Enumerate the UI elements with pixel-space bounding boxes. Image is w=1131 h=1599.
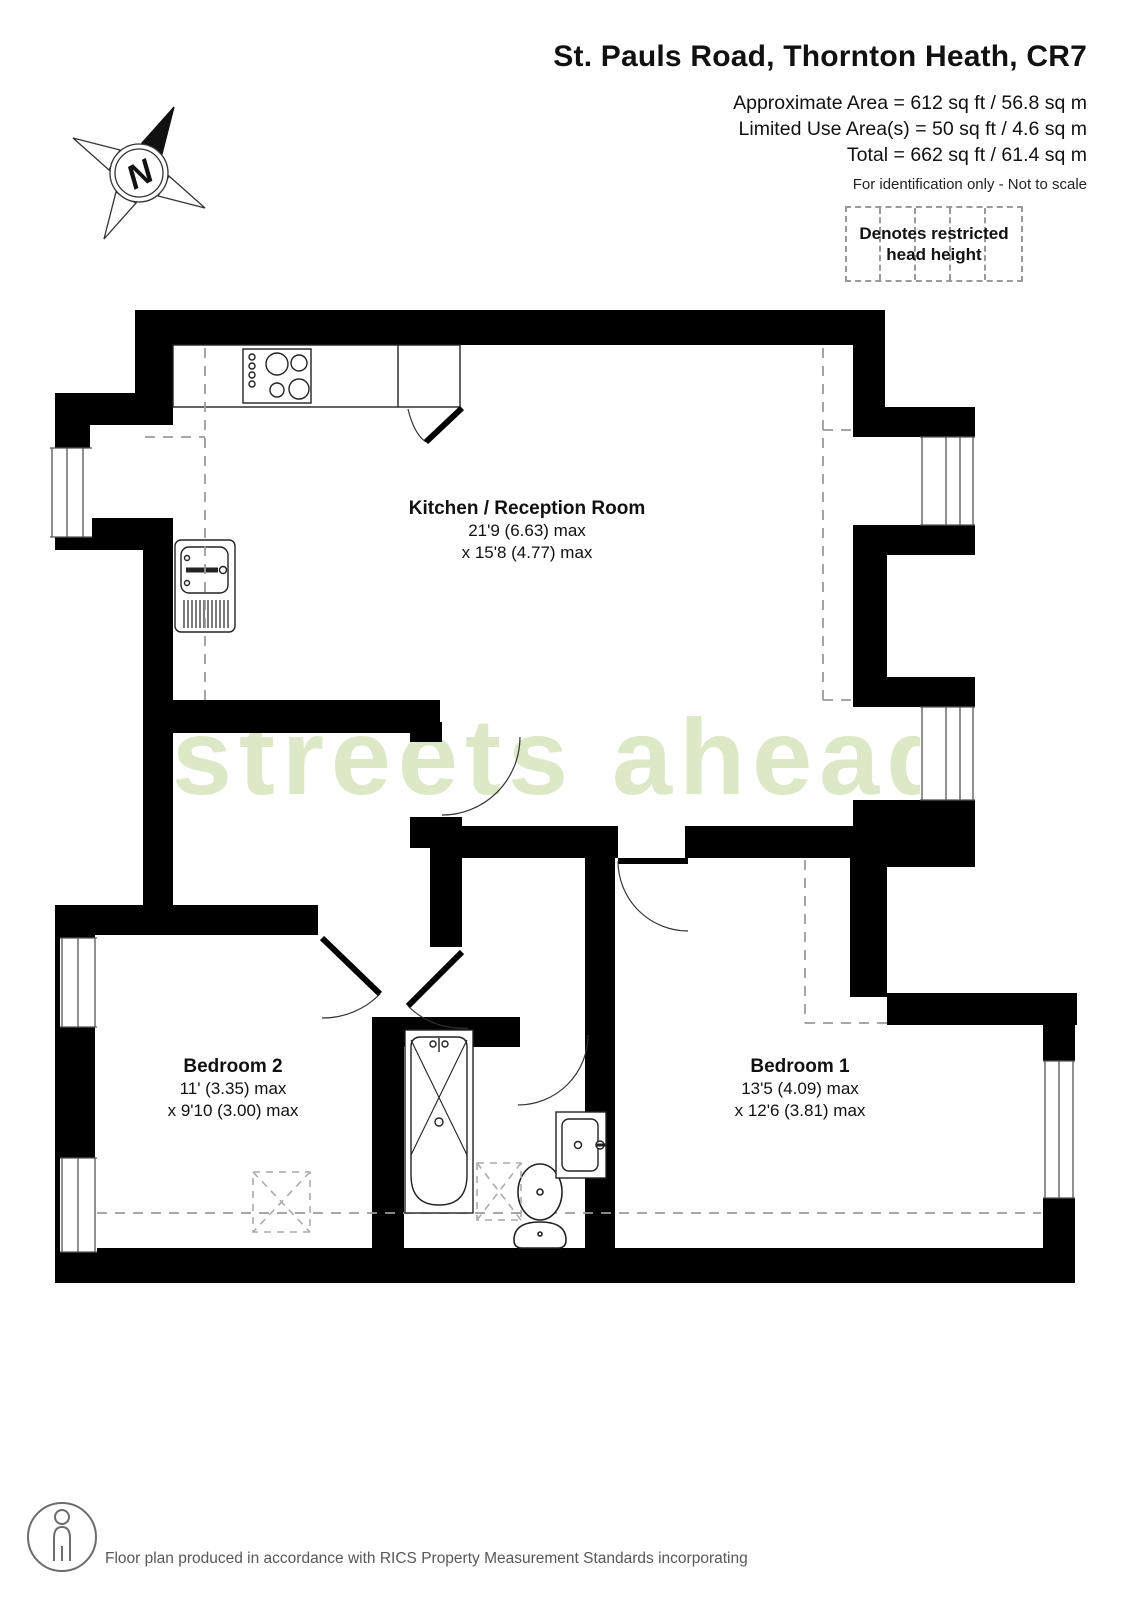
bedroom1-name: Bedroom 1 — [650, 1055, 950, 1078]
window-bay2-icon — [920, 707, 975, 800]
door-kitchen-hall-icon — [442, 737, 520, 815]
window-bay1-icon — [920, 437, 975, 525]
counter-door-icon — [408, 408, 462, 442]
kitchen-counter — [173, 345, 460, 407]
kitchen-name: Kitchen / Reception Room — [377, 497, 677, 520]
restricted-box-bathroom — [477, 1163, 521, 1220]
kitchen-dim-2: x 15'8 (4.77) max — [377, 542, 677, 564]
window-bedroom2-upper-icon — [60, 938, 97, 1027]
person-icon — [28, 1503, 96, 1571]
bedroom1-dim-1: 13'5 (4.09) max — [650, 1078, 950, 1100]
bedroom1-dim-2: x 12'6 (3.81) max — [650, 1100, 950, 1122]
room-label-bedroom1: Bedroom 1 13'5 (4.09) max x 12'6 (3.81) … — [650, 1055, 950, 1122]
room-label-kitchen: Kitchen / Reception Room 21'9 (6.63) max… — [377, 497, 677, 564]
door-bedroom2-icon — [322, 938, 380, 1018]
door-bathroom-icon — [518, 1035, 588, 1105]
basin-icon — [556, 1112, 606, 1178]
restricted-line-right-wall — [823, 348, 853, 700]
door-bedroom1-icon — [618, 861, 688, 931]
room-label-bedroom2: Bedroom 2 11' (3.35) max x 9'10 (3.00) m… — [83, 1055, 383, 1122]
bathtub-icon — [405, 1030, 473, 1213]
window-kitchen-left-icon — [50, 448, 92, 537]
bedroom2-dim-1: 11' (3.35) max — [83, 1078, 383, 1100]
window-bedroom2-lower-icon — [60, 1158, 97, 1252]
restricted-box-bedroom2 — [253, 1172, 310, 1232]
bedroom2-dim-2: x 9'10 (3.00) max — [83, 1100, 383, 1122]
compass-north-icon: N — [73, 107, 205, 239]
hob-icon — [243, 349, 311, 403]
door-hall-corner-icon — [408, 952, 468, 1028]
kitchen-dim-1: 21'9 (6.63) max — [377, 520, 677, 542]
floor-plan-svg: N — [0, 0, 1131, 1599]
window-bedroom1-right-icon — [1043, 1061, 1075, 1198]
bedroom2-name: Bedroom 2 — [83, 1055, 383, 1078]
